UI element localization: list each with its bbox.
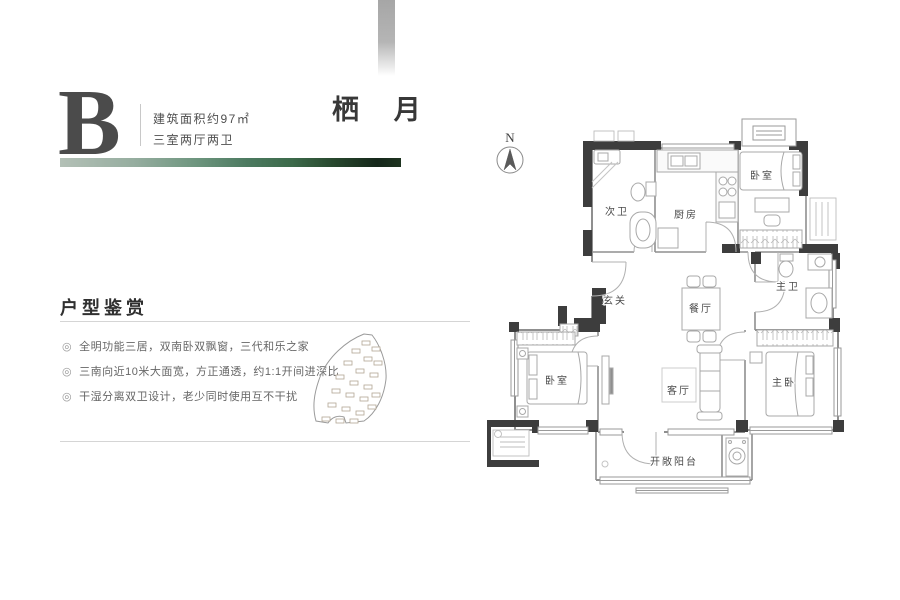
unit-block-letter: B [58, 76, 121, 170]
room-label-master-bedroom: 主卧 [772, 376, 796, 389]
room-label-bedroom-south: 卧室 [545, 374, 569, 387]
sofa-tv [602, 345, 722, 420]
divider-line-bottom [60, 441, 470, 442]
selling-points-list: ◎全明功能三居，双南卧双飘窗，三代和乐之家 ◎三南向近10米大面宽，方正通透，约… [62, 341, 322, 416]
accent-gradient-bar [60, 158, 401, 167]
decor-vertical-bar [378, 0, 395, 76]
spec-divider [140, 104, 141, 146]
list-item: ◎全明功能三居，双南卧双飘窗，三代和乐之家 [62, 341, 322, 353]
svg-text:N: N [505, 130, 515, 145]
bullet-text: 干湿分离双卫设计，老少同时使用互不干扰 [79, 391, 298, 403]
room-label-foyer: 玄关 [603, 294, 627, 307]
bed-master [750, 330, 833, 416]
bullet-text: 全明功能三居，双南卧双飘窗，三代和乐之家 [79, 341, 309, 353]
bed-north [740, 152, 802, 248]
compass-icon: N [497, 130, 523, 173]
room-label-master-bath: 主卫 [776, 281, 800, 293]
bullet-text: 三南向近10米大面宽，方正通透，约1:1开间进深比 [79, 366, 339, 378]
page-title: 栖 月 [332, 88, 435, 127]
unit-specs: 建筑面积约97㎡ 三室两厅两卫 [153, 109, 250, 151]
room-label-balcony: 开敞阳台 [650, 455, 698, 468]
room-label-living: 客厅 [667, 384, 691, 397]
site-plan-units [322, 341, 382, 423]
divider-line-top [60, 321, 470, 322]
unit-layout: 三室两厅两卫 [153, 130, 250, 151]
bullet-icon: ◎ [62, 391, 72, 403]
room-label-second-bath: 次卫 [605, 205, 629, 218]
bullet-icon: ◎ [62, 341, 72, 353]
section-heading: 户型鉴赏 [60, 294, 148, 320]
room-label-bedroom-north: 卧室 [750, 169, 774, 182]
site-plan-diagram [306, 331, 400, 428]
room-label-kitchen: 厨房 [674, 208, 698, 221]
kitchen-counter [657, 150, 738, 248]
floor-plan: N [487, 105, 859, 507]
list-item: ◎三南向近10米大面宽，方正通透，约1:1开间进深比 [62, 366, 322, 378]
list-item: ◎干湿分离双卫设计，老少同时使用互不干扰 [62, 391, 322, 403]
unit-area: 建筑面积约97㎡ [153, 109, 250, 130]
room-label-dining: 餐厅 [689, 302, 713, 315]
bullet-icon: ◎ [62, 366, 72, 378]
bathtub-sink-toilet [592, 150, 656, 248]
